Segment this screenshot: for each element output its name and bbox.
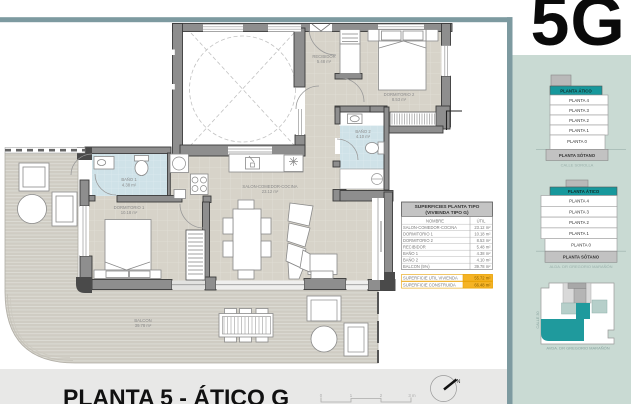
svg-text:8.53 m²: 8.53 m² — [392, 97, 407, 102]
svg-text:39.78 m²: 39.78 m² — [474, 264, 491, 269]
svg-text:3 m: 3 m — [408, 393, 416, 398]
svg-text:DORMITORIO 1: DORMITORIO 1 — [403, 232, 434, 237]
svg-text:55.72 m²: 55.72 m² — [474, 275, 491, 280]
svg-text:10.18 m²: 10.18 m² — [121, 210, 138, 215]
svg-text:PLANTA ÁTICO: PLANTA ÁTICO — [568, 189, 600, 194]
svg-text:PLANTA 4: PLANTA 4 — [569, 98, 589, 103]
svg-text:PLANTA SÓTANO: PLANTA SÓTANO — [563, 255, 600, 260]
svg-text:PLANTA 2: PLANTA 2 — [569, 220, 589, 225]
svg-text:CALLE SOROLLA: CALLE SOROLLA — [561, 163, 594, 168]
svg-text:23.12 m²: 23.12 m² — [262, 189, 279, 194]
svg-text:PLANTA 3: PLANTA 3 — [569, 209, 589, 214]
svg-text:BAÑO 1: BAÑO 1 — [121, 177, 137, 182]
svg-text:ÚTIL: ÚTIL — [477, 218, 487, 223]
svg-text:39.78 m²: 39.78 m² — [135, 323, 152, 328]
svg-text:PLANTA 4: PLANTA 4 — [569, 199, 589, 204]
svg-text:DORMITORIO 2: DORMITORIO 2 — [403, 238, 434, 243]
svg-text:BAÑO 2: BAÑO 2 — [403, 258, 419, 263]
svg-text:PLANTA SÓTANO: PLANTA SÓTANO — [559, 153, 596, 158]
svg-text:PLANTA 1: PLANTA 1 — [569, 231, 589, 236]
svg-text:PLANTA 1: PLANTA 1 — [569, 128, 589, 133]
svg-text:PLANTA 5 - ÁTICO G: PLANTA 5 - ÁTICO G — [63, 383, 289, 404]
svg-text:PLANTA 0: PLANTA 0 — [571, 243, 591, 248]
svg-text:NOMBRE: NOMBRE — [426, 218, 444, 223]
svg-text:(VIVIENDA TIPO G): (VIVIENDA TIPO G) — [425, 210, 469, 216]
svg-text:4.38 m²: 4.38 m² — [122, 183, 137, 188]
svg-text:RECIBIDOR: RECIBIDOR — [403, 245, 426, 250]
svg-text:CALLE 30: CALLE 30 — [536, 311, 540, 328]
svg-text:23.12 m²: 23.12 m² — [474, 225, 491, 230]
svg-text:5.48 m²: 5.48 m² — [477, 245, 492, 250]
svg-text:5.48 m²: 5.48 m² — [317, 59, 332, 64]
svg-text:10.18 m²: 10.18 m² — [474, 232, 491, 237]
svg-text:ALDA. DR GREGORIO MARAÑÓN: ALDA. DR GREGORIO MARAÑÓN — [549, 264, 612, 269]
svg-text:66.48 m²: 66.48 m² — [474, 282, 491, 287]
svg-text:BAÑO 1: BAÑO 1 — [403, 251, 419, 256]
svg-text:SALON-COMEDOR-COCINA: SALON-COMEDOR-COCINA — [403, 225, 457, 230]
svg-text:4.38 m²: 4.38 m² — [477, 251, 492, 256]
svg-text:PLANTA 2: PLANTA 2 — [569, 118, 589, 123]
svg-text:4.10 m²: 4.10 m² — [356, 134, 371, 139]
svg-text:5G: 5G — [531, 0, 626, 60]
svg-text:N: N — [457, 379, 461, 385]
svg-text:PLANTA ÁTICO: PLANTA ÁTICO — [560, 89, 592, 94]
svg-text:SUPERFICIE UTIL VIVIENDA: SUPERFICIE UTIL VIVIENDA — [403, 275, 458, 280]
svg-text:BALCON (5%): BALCON (5%) — [403, 264, 430, 269]
svg-text:PLANTA 0: PLANTA 0 — [567, 139, 587, 144]
svg-text:PLANTA 3: PLANTA 3 — [569, 108, 589, 113]
svg-text:AVDA. DR GREGORIO MARAÑÓN: AVDA. DR GREGORIO MARAÑÓN — [546, 346, 609, 351]
svg-text:SUPERFICIES PLANTA TIPO: SUPERFICIES PLANTA TIPO — [415, 204, 480, 210]
svg-text:8.53 m²: 8.53 m² — [477, 238, 492, 243]
svg-text:4.10 m²: 4.10 m² — [477, 258, 492, 263]
svg-text:SUPERFICIE CONSTRUIDA: SUPERFICIE CONSTRUIDA — [403, 282, 456, 287]
